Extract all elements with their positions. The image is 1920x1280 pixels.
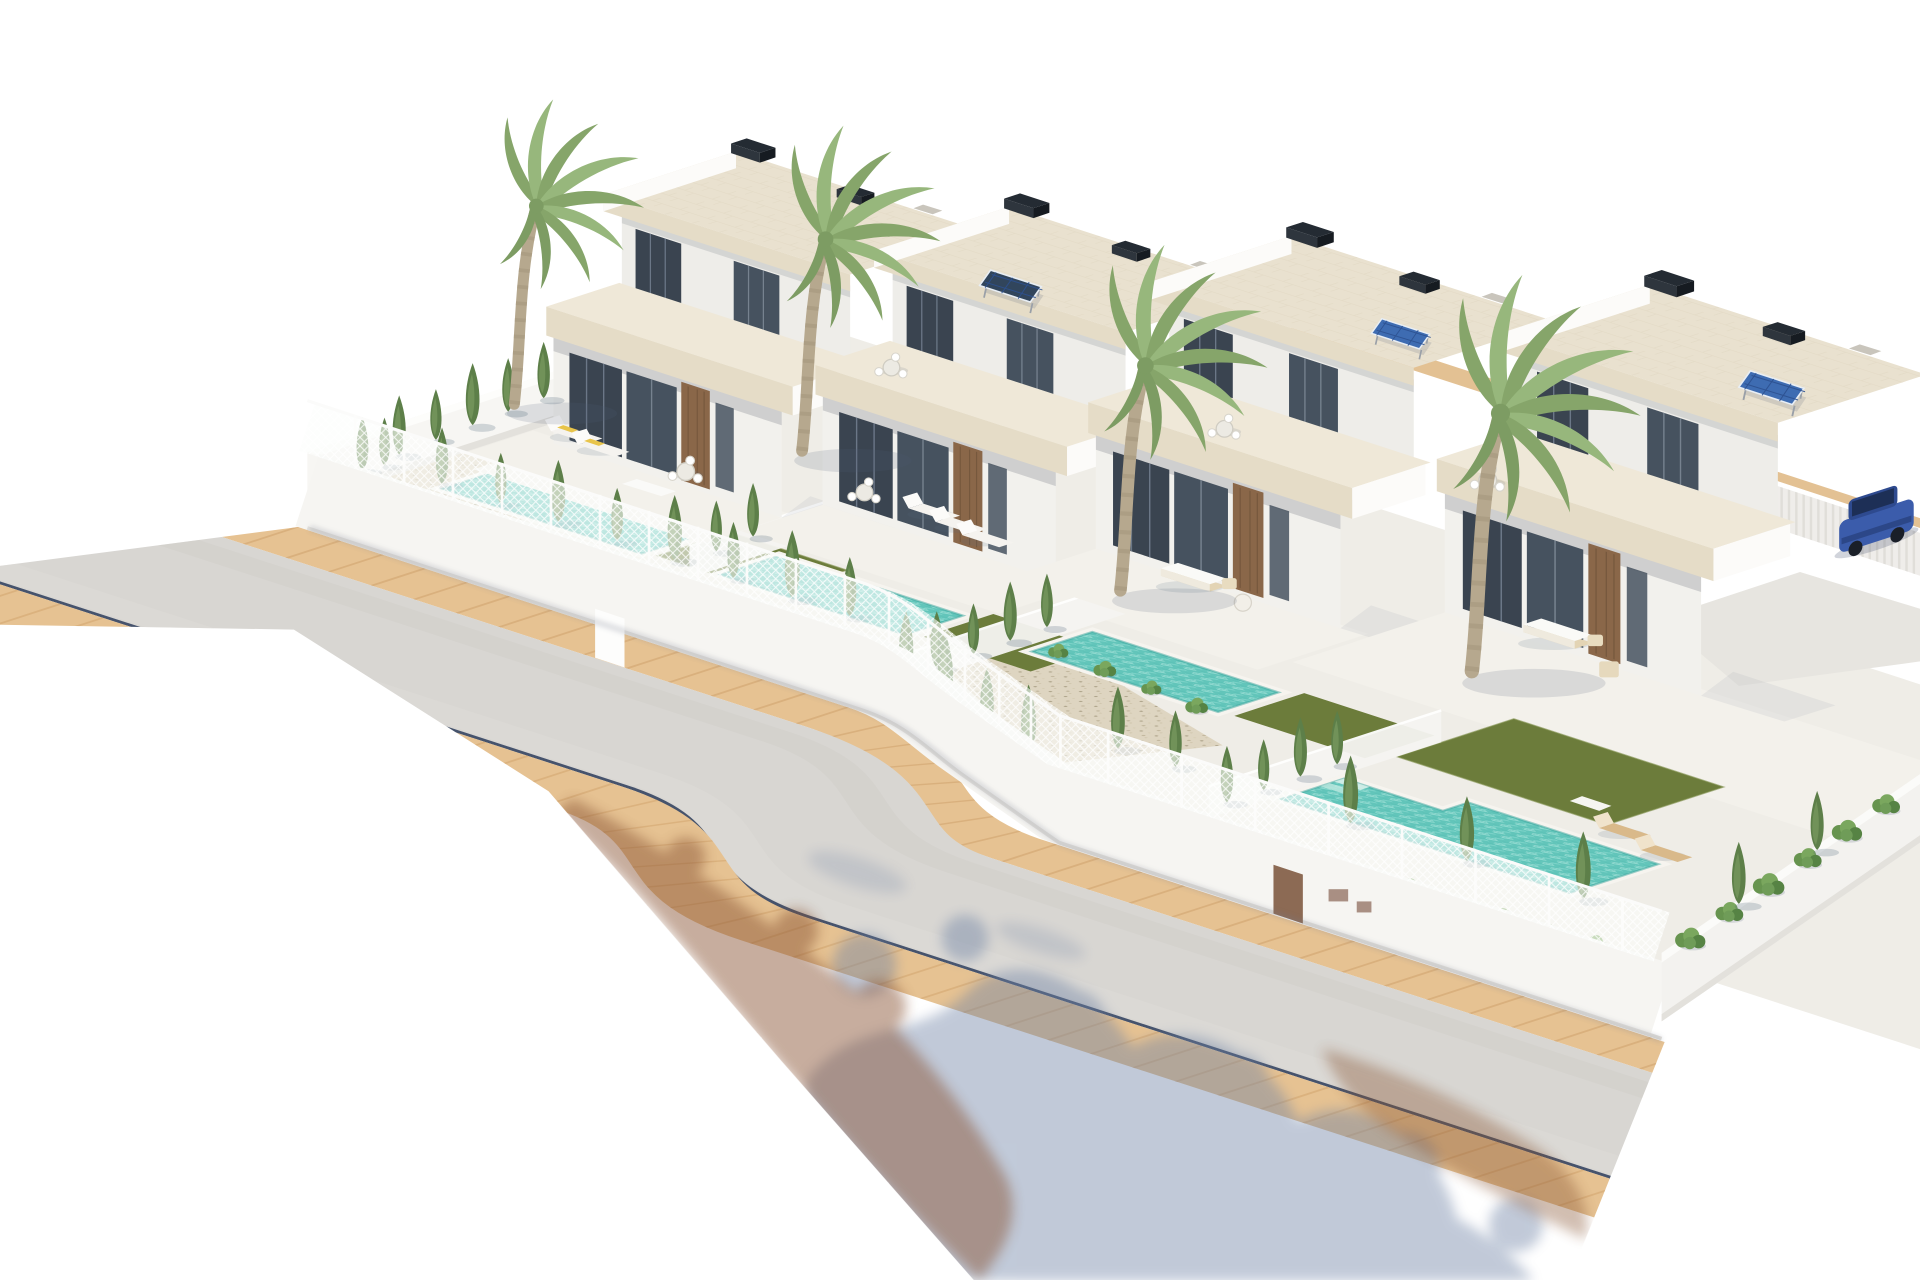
pedestrian-gate [595, 609, 624, 668]
villa-development-render [0, 0, 1920, 1280]
render-canvas [0, 0, 1920, 1280]
meter-box [1329, 889, 1349, 901]
